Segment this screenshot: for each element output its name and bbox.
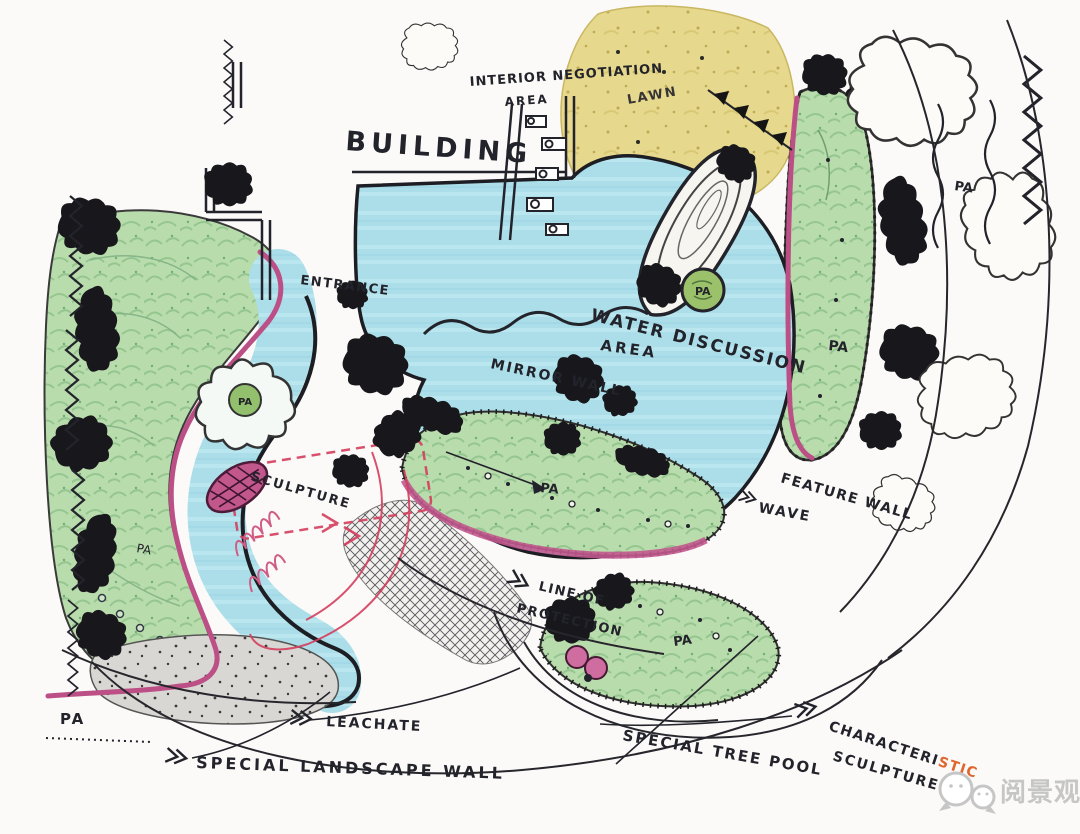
plan-drawing: BUILDING INTERIOR NEGOTIATION AREA LAWN … xyxy=(0,0,1080,834)
sketch-plan-canvas: BUILDING INTERIOR NEGOTIATION AREA LAWN … xyxy=(0,0,1080,834)
watermark-text: 阅景观 xyxy=(1000,778,1080,808)
pa-label-splash-circle: PA xyxy=(238,397,252,408)
pa-label-bottom-left: PA xyxy=(60,710,85,728)
pa-label-center-crescent: PA xyxy=(540,481,560,498)
pa-label-top-right: PA xyxy=(953,179,973,196)
pa-label-lower-crescent: PA xyxy=(672,633,692,650)
pa-label-boat-circle: PA xyxy=(695,285,711,298)
pa-label-right-band: PA xyxy=(828,338,850,356)
